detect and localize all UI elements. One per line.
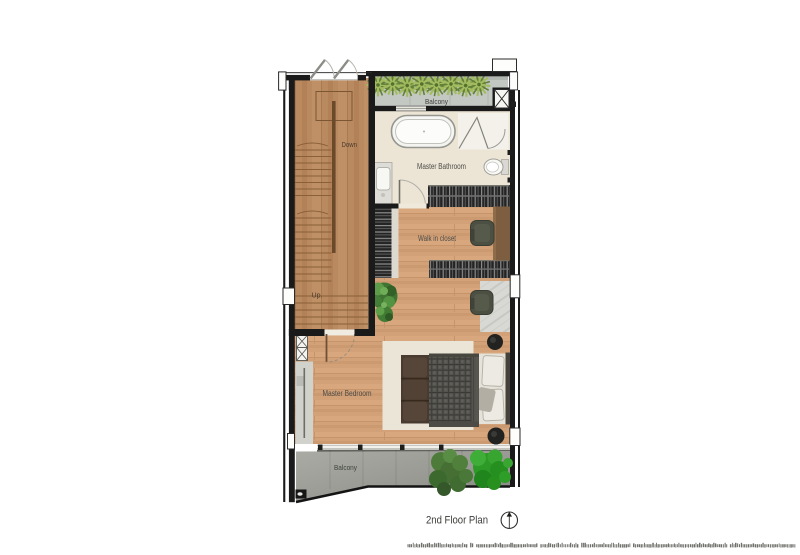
svg-text:Up.: Up. (312, 293, 323, 300)
svg-text:Balcony: Balcony (334, 463, 357, 472)
svg-text:Down: Down (342, 142, 358, 149)
svg-text:Master Bathroom: Master Bathroom (417, 162, 466, 171)
svg-text:Walk in closet: Walk in closet (418, 234, 457, 243)
svg-text:Balcony: Balcony (425, 97, 448, 106)
svg-text:Master Bedroom: Master Bedroom (323, 389, 372, 398)
svg-text:2nd Floor Plan: 2nd Floor Plan (426, 515, 488, 527)
